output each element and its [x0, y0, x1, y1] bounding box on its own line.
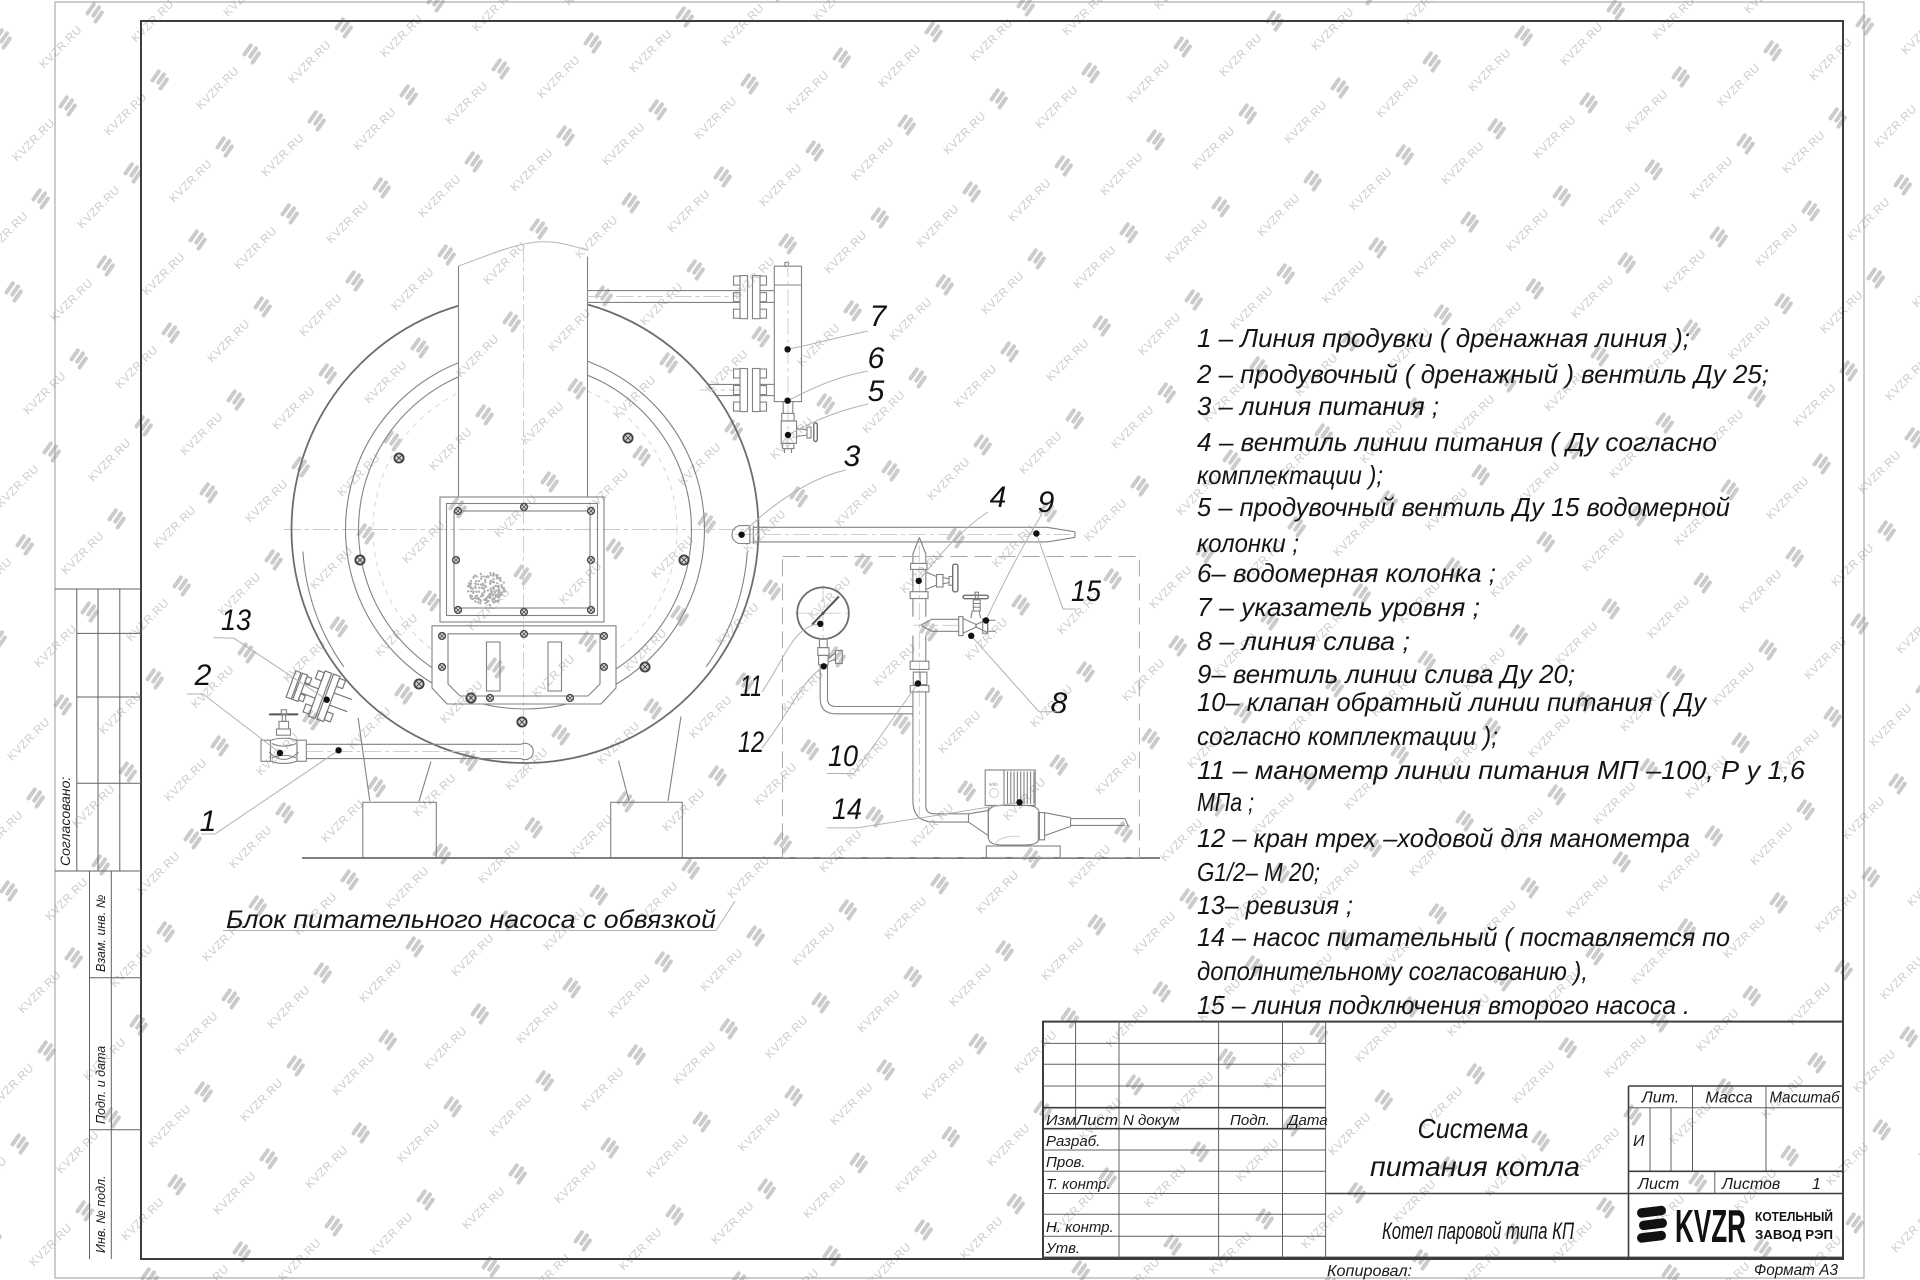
svg-text:9– вентиль линии слива Ду 20: 9– вентиль линии слива Ду 20; [1197, 659, 1575, 689]
svg-text:питания котла: питания котла [1370, 1151, 1580, 1182]
svg-text:KVZR.RU: KVZR.RU [910, 802, 957, 849]
svg-text:KVZR.RU: KVZR.RU [1045, 337, 1092, 384]
svg-text:KVZR.RU: KVZR.RU [347, 705, 394, 752]
svg-text:KVZR.RU: KVZR.RU [49, 277, 96, 324]
svg-text:KVZR.RU: KVZR.RU [1592, 780, 1639, 827]
svg-text:KVZR.RU: KVZR.RU [829, 1081, 876, 1128]
svg-text:Дата: Дата [1286, 1112, 1328, 1129]
svg-text:11 – манометр линии питания: 11 – манометр линии питания МП –100, Р у… [1197, 755, 1806, 785]
svg-text:KVZR.RU: KVZR.RU [1868, 702, 1915, 749]
svg-text:KVZR.RU: KVZR.RU [1830, 542, 1877, 589]
svg-text:KVZR.RU: KVZR.RU [536, 54, 583, 101]
svg-text:KVZR.RU: KVZR.RU [1040, 936, 1087, 983]
svg-text:KVZR.RU: KVZR.RU [6, 716, 53, 763]
svg-text:14 – насос питательный ( пос: 14 – насос питательный ( поставляется по [1197, 922, 1730, 952]
svg-text:KVZR.RU: KVZR.RU [807, 575, 854, 622]
svg-text:KVZR.RU: KVZR.RU [1099, 151, 1146, 198]
svg-text:1: 1 [1812, 1176, 1821, 1193]
svg-text:KVZR.RU: KVZR.RU [0, 0, 20, 4]
svg-text:1 – Линия продувки ( дренажн: 1 – Линия продувки ( дренажная линия ); [1197, 323, 1690, 353]
svg-text:KVZR.RU: KVZR.RU [677, 441, 724, 488]
svg-text:KVZR.RU: KVZR.RU [1235, 1137, 1282, 1184]
svg-text:KVZR.RU: KVZR.RU [1375, 73, 1422, 120]
svg-text:МПа ;: МПа ; [1197, 787, 1254, 817]
svg-text:KVZR.RU: KVZR.RU [969, 17, 1016, 64]
svg-text:KVZR.RU: KVZR.RU [1511, 1059, 1558, 1106]
svg-text:KVZR.RU: KVZR.RU [1327, 1111, 1374, 1158]
svg-text:KVZR.RU: KVZR.RU [753, 761, 800, 808]
svg-text:KVZR.RU: KVZR.RU [103, 91, 150, 138]
svg-text:KVZR.RU: KVZR.RU [547, 307, 594, 354]
svg-text:KVZR.RU: KVZR.RU [818, 828, 865, 875]
svg-text:KVZR.RU: KVZR.RU [1689, 155, 1736, 202]
svg-text:KVZR.RU: KVZR.RU [1727, 315, 1774, 362]
svg-text:KVZR.RU: KVZR.RU [894, 1148, 941, 1195]
svg-text:KVZR.RU: KVZR.RU [1321, 259, 1368, 306]
svg-text:Лист: Лист [1637, 1176, 1679, 1193]
svg-text:Согласовано:: Согласовано: [57, 777, 73, 866]
svg-text:KVZR.RU: KVZR.RU [1814, 888, 1861, 935]
svg-text:KVZR.RU: KVZR.RU [699, 947, 746, 994]
svg-text:KVZR.RU: KVZR.RU [130, 0, 177, 45]
svg-text:KVZR.RU: KVZR.RU [17, 969, 64, 1016]
svg-text:KVZR.RU: KVZR.RU [1013, 1029, 1060, 1076]
svg-text:KVZR.RU: KVZR.RU [1121, 657, 1168, 704]
svg-text:KVZR.RU: KVZR.RU [569, 813, 616, 860]
svg-text:KVZR.RU: KVZR.RU [1662, 248, 1709, 295]
svg-text:KVZR.RU: KVZR.RU [883, 895, 930, 942]
svg-text:KVZR.RU: KVZR.RU [1646, 594, 1693, 641]
svg-text:KVZR.RU: KVZR.RU [1256, 192, 1303, 239]
svg-text:KVZR.RU: KVZR.RU [742, 508, 789, 555]
svg-text:ЗАВОД РЭП: ЗАВОД РЭП [1755, 1227, 1833, 1242]
svg-text:KVZR.RU: KVZR.RU [1354, 1018, 1401, 1065]
svg-text:KVZR.RU: KVZR.RU [942, 110, 989, 157]
svg-text:KVZR.RU: KVZR.RU [1906, 862, 1920, 909]
svg-text:13: 13 [221, 604, 251, 637]
svg-text:KVZR.RU: KVZR.RU [396, 1118, 443, 1165]
svg-text:KVZR.RU: KVZR.RU [163, 757, 210, 804]
svg-text:15: 15 [1071, 575, 1101, 608]
svg-text:KVZR.RU: KVZR.RU [812, 0, 859, 23]
svg-text:KVZR.RU: KVZR.RU [304, 1144, 351, 1191]
svg-text:ИзмЛист: ИзмЛист [1046, 1112, 1118, 1129]
svg-text:KVZR.RU: KVZR.RU [1895, 609, 1920, 656]
svg-text:7 – указатель уровня ;: 7 – указатель уровня ; [1197, 592, 1480, 622]
svg-text:KVZR.RU: KVZR.RU [802, 1174, 849, 1221]
svg-text:KVZR.RU: KVZR.RU [553, 1159, 600, 1206]
svg-text:Масса: Масса [1705, 1090, 1752, 1107]
svg-text:KVZR.RU: KVZR.RU [195, 65, 242, 112]
svg-text:KVZR.RU: KVZR.RU [1900, 10, 1920, 57]
svg-text:KVZR.RU: KVZR.RU [287, 39, 334, 86]
svg-text:KVZR.RU: KVZR.RU [1738, 568, 1785, 615]
svg-text:KVZR.RU: KVZR.RU [369, 1211, 416, 1258]
svg-text:KVZR.RU: KVZR.RU [1208, 1230, 1255, 1277]
svg-text:KVZR.RU: KVZR.RU [758, 162, 805, 209]
svg-text:KVZR.RU: KVZR.RU [1603, 1033, 1650, 1080]
svg-text:KVZR.RU: KVZR.RU [1083, 497, 1130, 544]
svg-text:KVZR.RU: KVZR.RU [244, 478, 291, 525]
svg-text:KVZR.RU: KVZR.RU [580, 1066, 627, 1113]
svg-text:KVZR.RU: KVZR.RU [1706, 1260, 1753, 1280]
svg-text:KVZR.RU: KVZR.RU [823, 229, 870, 276]
svg-text:KVZR.RU: KVZR.RU [1218, 32, 1265, 79]
svg-text:KVZR.RU: KVZR.RU [141, 251, 188, 298]
svg-text:KVZR.RU: KVZR.RU [1137, 311, 1184, 358]
svg-text:KVZR.RU: KVZR.RU [1532, 114, 1579, 161]
svg-text:KVZR.RU: KVZR.RU [1283, 99, 1330, 146]
svg-text:Копировал:: Копировал: [1327, 1263, 1412, 1280]
svg-text:KVZR.RU: KVZR.RU [271, 385, 318, 432]
svg-text:KVZR.RU: KVZR.RU [1576, 1126, 1623, 1173]
svg-text:KVZR.RU: KVZR.RU [233, 225, 280, 272]
svg-text:KVZR.RU: KVZR.RU [1716, 62, 1763, 109]
svg-text:KVZR.RU: KVZR.RU [1527, 713, 1574, 760]
svg-text:KVZR.RU: KVZR.RU [60, 530, 107, 577]
svg-text:4: 4 [990, 481, 1007, 514]
svg-text:KVZR.RU: KVZR.RU [645, 1133, 692, 1180]
svg-text:Подп.: Подп. [1230, 1112, 1270, 1129]
svg-text:KVZR.RU: KVZR.RU [455, 333, 502, 380]
svg-text:KVZR.RU: KVZR.RU [428, 426, 475, 473]
svg-text:KVZR.RU: KVZR.RU [688, 694, 735, 741]
svg-text:G1/2– М 20;: G1/2– М 20; [1197, 857, 1320, 887]
svg-text:6– водомерная колонка ;: 6– водомерная колонка ; [1197, 558, 1496, 588]
svg-text:KVZR.RU: KVZR.RU [1846, 196, 1893, 243]
svg-text:4 – вентиль линии питания (: 4 – вентиль линии питания ( Ду согласно [1197, 427, 1717, 457]
svg-text:KVZR.RU: KVZR.RU [1164, 218, 1211, 265]
svg-text:KVZR.RU: KVZR.RU [1440, 140, 1487, 187]
svg-text:KVZR.RU: KVZR.RU [266, 984, 313, 1031]
svg-text:KVZR.RU: KVZR.RU [336, 452, 383, 499]
svg-text:KVZR.RU: KVZR.RU [1191, 125, 1238, 172]
svg-text:KVZR.RU: KVZR.RU [1067, 843, 1114, 890]
svg-text:KVZR.RU: KVZR.RU [834, 482, 881, 529]
svg-text:KVZR.RU: KVZR.RU [720, 2, 767, 49]
svg-text:KVZR.RU: KVZR.RU [482, 240, 529, 287]
svg-text:Т. контр.: Т. контр. [1046, 1176, 1111, 1193]
svg-text:KVZR.RU: KVZR.RU [358, 958, 405, 1005]
svg-text:KVZR.RU: KVZR.RU [731, 255, 778, 302]
svg-text:2 – продувочный ( дренажный: 2 – продувочный ( дренажный ) вентиль Ду… [1196, 359, 1769, 389]
svg-text:KVZR.RU: KVZR.RU [1890, 1208, 1920, 1255]
svg-text:KVZR.RU: KVZR.RU [1262, 1044, 1309, 1091]
svg-text:KVZR.RU: KVZR.RU [320, 798, 367, 845]
svg-text:KVZR.RU: KVZR.RU [38, 24, 85, 71]
svg-text:KVZR.RU: KVZR.RU [1668, 1100, 1715, 1147]
svg-text:KVZR.RU: KVZR.RU [1808, 36, 1855, 83]
svg-text:10: 10 [828, 740, 858, 773]
svg-text:KVZR.RU: KVZR.RU [71, 783, 118, 830]
svg-text:KVZR.RU: KVZR.RU [1018, 430, 1065, 477]
svg-text:KVZR.RU: KVZR.RU [450, 932, 497, 979]
svg-text:KVZR.RU: KVZR.RU [147, 1103, 194, 1150]
svg-text:KVZR.RU: KVZR.RU [477, 839, 524, 886]
svg-text:N докум: N докум [1123, 1112, 1180, 1129]
svg-text:KVZR.RU: KVZR.RU [726, 854, 773, 901]
svg-text:KVZR.RU: KVZR.RU [152, 504, 199, 551]
svg-text:KVZR.RU: KVZR.RU [1565, 873, 1612, 920]
svg-text:KVZR.RU: KVZR.RU [504, 746, 551, 793]
svg-text:KVZR.RU: KVZR.RU [1754, 222, 1801, 269]
svg-text:KVZR.RU: KVZR.RU [22, 370, 69, 417]
svg-text:Лит.: Лит. [1641, 1090, 1679, 1107]
svg-text:KVZR.RU: KVZR.RU [509, 147, 556, 194]
svg-text:KVZR.RU: KVZR.RU [888, 296, 935, 343]
svg-text:KVZR.RU: KVZR.RU [1002, 776, 1049, 823]
svg-text:KVZR.RU: KVZR.RU [937, 709, 984, 756]
svg-text:KVZR.RU: KVZR.RU [390, 266, 437, 313]
svg-text:KVZR.RU: KVZR.RU [1413, 233, 1460, 280]
svg-text:KVZR.RU: KVZR.RU [1126, 58, 1173, 105]
svg-text:KVZR.RU: KVZR.RU [114, 344, 161, 391]
svg-text:И: И [1633, 1133, 1645, 1150]
svg-text:KVZR.RU: KVZR.RU [1879, 955, 1920, 1002]
svg-text:KVZR.RU: KVZR.RU [0, 1062, 37, 1109]
svg-text:Масштаб: Масштаб [1770, 1090, 1841, 1107]
svg-text:3 – линия питания ;: 3 – линия питания ; [1197, 391, 1439, 421]
svg-text:KVZR.RU: KVZR.RU [0, 210, 31, 257]
svg-text:5 – продувочный вентиль Ду 1: 5 – продувочный вентиль Ду 15 водомерной [1197, 492, 1730, 522]
svg-text:9: 9 [1038, 486, 1055, 519]
svg-text:KVZR.RU: KVZR.RU [1007, 177, 1054, 224]
svg-text:KVZR.RU: KVZR.RU [796, 322, 843, 369]
svg-text:KVZR.RU: KVZR.RU [618, 1226, 665, 1273]
svg-text:KVZR.RU: KVZR.RU [417, 173, 464, 220]
svg-text:KVZR.RU: KVZR.RU [325, 199, 372, 246]
svg-text:KVZR.RU: KVZR.RU [764, 1014, 811, 1061]
svg-text:колонки ;: колонки ; [1197, 528, 1299, 558]
svg-text:1: 1 [200, 805, 217, 838]
svg-text:KVZR.RU: KVZR.RU [628, 28, 675, 75]
svg-text:KVZR.RU: KVZR.RU [672, 1040, 719, 1087]
svg-text:10– клапан обратный линии пит: 10– клапан обратный линии питания ( Ду [1197, 687, 1708, 717]
svg-text:KVZR.RU: KVZR.RU [520, 400, 567, 447]
svg-text:wilo: wilo [989, 782, 998, 788]
svg-text:KVZR.RU: KVZR.RU [980, 270, 1027, 317]
svg-text:KVZR.RU: KVZR.RU [877, 43, 924, 90]
svg-text:KVZR.RU: KVZR.RU [563, 0, 610, 8]
svg-text:KVZR.RU: KVZR.RU [856, 988, 903, 1035]
svg-text:KVZR.RU: KVZR.RU [1457, 1245, 1504, 1280]
svg-text:KVZR.RU: KVZR.RU [174, 1010, 221, 1057]
svg-text:KVZR.RU: KVZR.RU [412, 772, 459, 819]
svg-text:KVZR.RU: KVZR.RU [1310, 6, 1357, 53]
svg-text:KVZR.RU: KVZR.RU [1148, 564, 1195, 611]
svg-text:KVZR.RU: KVZR.RU [693, 95, 740, 142]
svg-text:KVZR.RU: KVZR.RU [1072, 244, 1119, 291]
svg-text:Блок питательного насоса с обв: Блок питательного насоса с обвязкой [226, 906, 716, 934]
svg-text:KVZR.RU: KVZR.RU [76, 184, 123, 231]
svg-text:KVZR.RU: KVZR.RU [1911, 263, 1920, 310]
svg-text:KVZR.RU: KVZR.RU [872, 642, 919, 689]
svg-text:KVZR.RU: KVZR.RU [601, 121, 648, 168]
svg-text:KVZR.RU: KVZR.RU [1348, 166, 1395, 213]
svg-text:7: 7 [870, 300, 888, 333]
svg-text:KVZR.RU: KVZR.RU [120, 1196, 167, 1243]
svg-text:KVZR.RU: KVZR.RU [953, 363, 1000, 410]
svg-text:KVZR.RU: KVZR.RU [1657, 847, 1704, 894]
svg-text:KVZR.RU: KVZR.RU [1884, 356, 1920, 403]
svg-text:KVZR.RU: KVZR.RU [1825, 1141, 1872, 1188]
svg-text:Котел паровой типа КП: Котел паровой типа КП [1382, 1218, 1574, 1245]
svg-text:KVZR.RU: KVZR.RU [1061, 0, 1108, 38]
svg-text:KVZR.RU: KVZR.RU [785, 69, 832, 116]
svg-text:KVZR.RU: KVZR.RU [666, 188, 713, 235]
svg-text:KVZR.RU: KVZR.RU [986, 1122, 1033, 1169]
svg-text:KVZR.RU: KVZR.RU [531, 653, 578, 700]
svg-text:комплектации );: комплектации ); [1197, 460, 1383, 490]
svg-text:KVZR.RU: KVZR.RU [1170, 1070, 1217, 1117]
svg-text:12: 12 [738, 726, 764, 759]
svg-text:KVZR.RU: KVZR.RU [222, 0, 269, 19]
svg-text:KVZR.RU: KVZR.RU [87, 437, 134, 484]
svg-text:KVZR.RU: KVZR.RU [0, 303, 4, 350]
svg-text:KVZR.RU: KVZR.RU [444, 80, 491, 127]
svg-text:11: 11 [740, 670, 762, 703]
svg-text:KVZR.RU: KVZR.RU [1695, 1007, 1742, 1054]
svg-text:KVZR.RU: KVZR.RU [1467, 47, 1514, 94]
svg-text:KVZR.RU: KVZR.RU [0, 556, 15, 603]
svg-text:KVZR.RU: KVZR.RU [1711, 661, 1758, 708]
svg-text:KVZR.RU: KVZR.RU [363, 359, 410, 406]
svg-text:KVZR.RU: KVZR.RU [206, 318, 253, 365]
svg-text:KVZR.RU: KVZR.RU [926, 456, 973, 503]
svg-text:КОТЕЛЬНЫЙ: КОТЕЛЬНЫЙ [1755, 1209, 1833, 1224]
svg-text:KVZR.RU: KVZR.RU [136, 850, 183, 897]
svg-text:Система: Система [1418, 1113, 1529, 1144]
svg-text:KVZR.RU: KVZR.RU [331, 1051, 378, 1098]
svg-text:Формат А3: Формат А3 [1754, 1262, 1838, 1279]
svg-text:2: 2 [194, 659, 212, 692]
svg-text:KVZR.RU: KVZR.RU [33, 623, 80, 670]
svg-text:15 – линия подключения второг: 15 – линия подключения второго насоса . [1197, 990, 1690, 1020]
svg-text:KVZR.RU: KVZR.RU [228, 824, 275, 871]
svg-text:KVZR.RU: KVZR.RU [574, 214, 621, 261]
svg-text:KVZR.RU: KVZR.RU [650, 534, 697, 581]
svg-text:Листов: Листов [1721, 1176, 1780, 1193]
svg-text:Разраб.: Разраб. [1046, 1133, 1100, 1150]
svg-text:KVZR.RU: KVZR.RU [0, 463, 42, 510]
svg-text:3: 3 [844, 440, 861, 473]
svg-text:KVZR.RU: KVZR.RU [28, 1222, 75, 1269]
svg-text:KVZR.RU: KVZR.RU [921, 1055, 968, 1102]
svg-text:KVZR.RU: KVZR.RU [791, 921, 838, 968]
svg-text:KVZR.RU: KVZR.RU [11, 117, 58, 164]
svg-text:KVZR.RU: KVZR.RU [44, 876, 91, 923]
svg-text:Взам. инв. №: Взам. инв. № [94, 894, 108, 972]
svg-text:KVZR.RU: KVZR.RU [1597, 181, 1644, 228]
svg-text:KVZR.RU: KVZR.RU [607, 973, 654, 1020]
svg-text:KVZR.RU: KVZR.RU [1792, 382, 1839, 429]
svg-text:KVZR.RU: KVZR.RU [737, 1107, 784, 1154]
svg-text:дополнительному согласованию ): дополнительному согласованию ), [1197, 956, 1588, 986]
svg-text:KVZR.RU: KVZR.RU [423, 1025, 470, 1072]
svg-text:KVZR.RU: KVZR.RU [1034, 84, 1081, 131]
svg-text:KVZR.RU: KVZR.RU [515, 999, 562, 1046]
svg-text:KVZR.RU: KVZR.RU [239, 1077, 286, 1124]
svg-text:KVZR.RU: KVZR.RU [1873, 103, 1920, 150]
svg-text:KVZR.RU: KVZR.RU [125, 597, 172, 644]
svg-text:KVZR.RU: KVZR.RU [948, 962, 995, 1009]
svg-text:KVZR.RU: KVZR.RU [1110, 404, 1157, 451]
svg-text:KVZR.RU: KVZR.RU [298, 292, 345, 339]
svg-text:KVZR.RU: KVZR.RU [260, 132, 307, 179]
svg-text:KVZR.RU: KVZR.RU [55, 1129, 102, 1176]
svg-text:KVZR.RU: KVZR.RU [1765, 475, 1812, 522]
svg-text:KVZR.RU: KVZR.RU [401, 519, 448, 566]
svg-text:KVZR.RU: KVZR.RU [352, 106, 399, 153]
svg-text:KVZR.RU: KVZR.RU [1624, 88, 1671, 135]
svg-text:KVZR.RU: KVZR.RU [975, 869, 1022, 916]
svg-text:13– ревизия ;: 13– ревизия ; [1197, 890, 1353, 920]
svg-text:Н. контр.: Н. контр. [1046, 1219, 1114, 1236]
svg-text:KVZR.RU: KVZR.RU [168, 158, 215, 205]
svg-text:KVZR.RU: KVZR.RU [1559, 21, 1606, 68]
svg-text:KVZR.RU: KVZR.RU [526, 1252, 573, 1280]
svg-text:Инв. № подл.: Инв. № подл. [94, 1175, 108, 1253]
svg-text:KVZR: KVZR [1675, 1200, 1746, 1252]
svg-text:KVZR.RU: KVZR.RU [0, 1155, 10, 1202]
svg-text:KVZR.RU: KVZR.RU [867, 1241, 914, 1280]
svg-text:KVZR.RU: KVZR.RU [1094, 750, 1141, 797]
svg-text:KVZR.RU: KVZR.RU [179, 411, 226, 458]
svg-text:12 – кран трех –ходовой для м: 12 – кран трех –ходовой для манометра [1197, 823, 1690, 853]
svg-text:KVZR.RU: KVZR.RU [461, 1185, 508, 1232]
svg-text:KVZR.RU: KVZR.RU [471, 0, 518, 34]
svg-text:KVZR.RU: KVZR.RU [1581, 527, 1628, 574]
svg-text:KVZR.RU: KVZR.RU [710, 1200, 757, 1247]
svg-text:KVZR.RU: KVZR.RU [1505, 207, 1552, 254]
svg-text:KVZR.RU: KVZR.RU [1570, 274, 1617, 321]
svg-text:KVZR.RU: KVZR.RU [1300, 1204, 1347, 1251]
svg-text:6: 6 [868, 342, 885, 375]
svg-text:5: 5 [868, 375, 885, 408]
svg-text:Подп. и дата: Подп. и дата [94, 1046, 108, 1124]
svg-text:KVZR.RU: KVZR.RU [309, 545, 356, 592]
svg-text:KVZR.RU: KVZR.RU [850, 136, 897, 183]
svg-text:KVZR.RU: KVZR.RU [1143, 1163, 1190, 1210]
svg-text:KVZR.RU: KVZR.RU [493, 493, 540, 540]
svg-text:Утв.: Утв. [1045, 1240, 1080, 1257]
svg-text:согласно комплектации );: согласно комплектации ); [1197, 721, 1498, 751]
svg-text:8: 8 [1051, 687, 1068, 720]
svg-text:KVZR.RU: KVZR.RU [185, 1263, 232, 1280]
svg-text:KVZR.RU: KVZR.RU [959, 1215, 1006, 1262]
svg-text:KVZR.RU: KVZR.RU [0, 809, 26, 856]
svg-text:KVZR.RU: KVZR.RU [612, 374, 659, 421]
svg-text:KVZR.RU: KVZR.RU [109, 943, 156, 990]
svg-text:14: 14 [832, 793, 862, 826]
svg-text:KVZR.RU: KVZR.RU [1402, 0, 1449, 27]
svg-text:KVZR.RU: KVZR.RU [1852, 1048, 1899, 1095]
svg-text:KVZR.RU: KVZR.RU [1749, 821, 1796, 868]
svg-text:Пров.: Пров. [1046, 1154, 1086, 1171]
svg-text:KVZR.RU: KVZR.RU [1132, 910, 1179, 957]
svg-text:8 – линия слива ;: 8 – линия слива ; [1197, 626, 1410, 656]
svg-text:KVZR.RU: KVZR.RU [488, 1092, 535, 1139]
svg-text:KVZR.RU: KVZR.RU [1494, 0, 1541, 1]
svg-text:KVZR.RU: KVZR.RU [661, 787, 708, 834]
svg-text:KVZR.RU: KVZR.RU [915, 203, 962, 250]
svg-text:KVZR.RU: KVZR.RU [212, 1170, 259, 1217]
svg-text:KVZR.RU: KVZR.RU [1781, 129, 1828, 176]
svg-text:KVZR.RU: KVZR.RU [1917, 1115, 1920, 1162]
svg-text:KVZR.RU: KVZR.RU [639, 281, 686, 328]
